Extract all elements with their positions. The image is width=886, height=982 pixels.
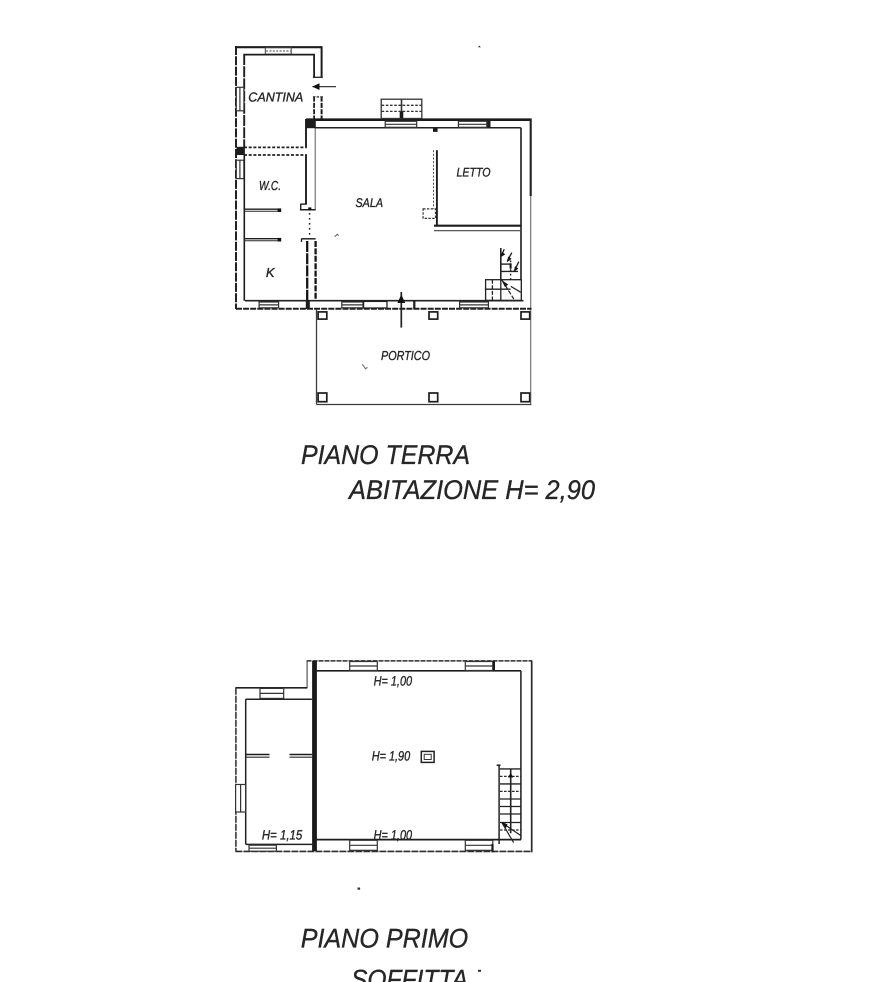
svg-text:CANTINA: CANTINA	[248, 90, 303, 105]
svg-text:LETTO: LETTO	[457, 165, 491, 179]
svg-text:H= 1,00: H= 1,00	[374, 674, 413, 689]
svg-text:W.C.: W.C.	[259, 178, 281, 193]
svg-text:H= 1,90: H= 1,90	[372, 749, 411, 764]
svg-text:SALA: SALA	[356, 196, 384, 210]
svg-text:ABITAZIONE H= 2,90: ABITAZIONE H= 2,90	[347, 475, 595, 505]
svg-text:H= 1,00: H= 1,00	[374, 828, 413, 843]
svg-text:PIANO TERRA: PIANO TERRA	[301, 440, 470, 470]
svg-text:H= 1,15: H= 1,15	[262, 828, 303, 843]
svg-text:PIANO PRIMO: PIANO PRIMO	[301, 924, 469, 954]
svg-text:SOFFITTA: SOFFITTA	[351, 965, 468, 982]
svg-text:PORTICO: PORTICO	[381, 348, 430, 363]
svg-text:K: K	[266, 265, 276, 280]
